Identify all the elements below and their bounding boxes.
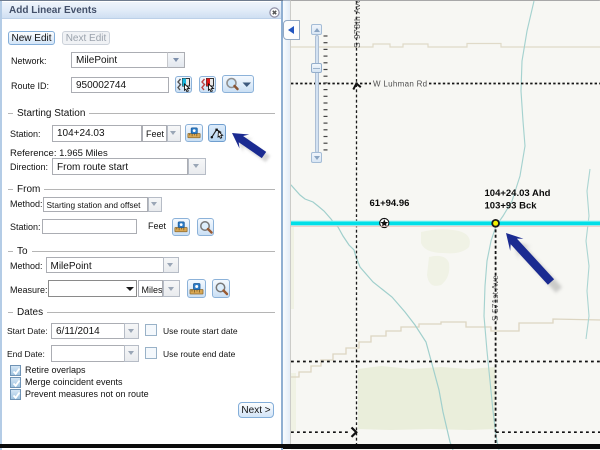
svg-text:W Luhman Rd: W Luhman Rd xyxy=(373,80,427,89)
svg-text:S 571st Ave: S 571st Ave xyxy=(491,275,500,321)
svg-text:104+24.03 Ahd: 104+24.03 Ahd xyxy=(485,188,551,199)
svg-text:103+93 Bck: 103+93 Bck xyxy=(485,201,538,212)
svg-text:61+94.96: 61+94.96 xyxy=(370,198,410,209)
svg-text:S 978th Ave: S 978th Ave xyxy=(352,1,362,48)
